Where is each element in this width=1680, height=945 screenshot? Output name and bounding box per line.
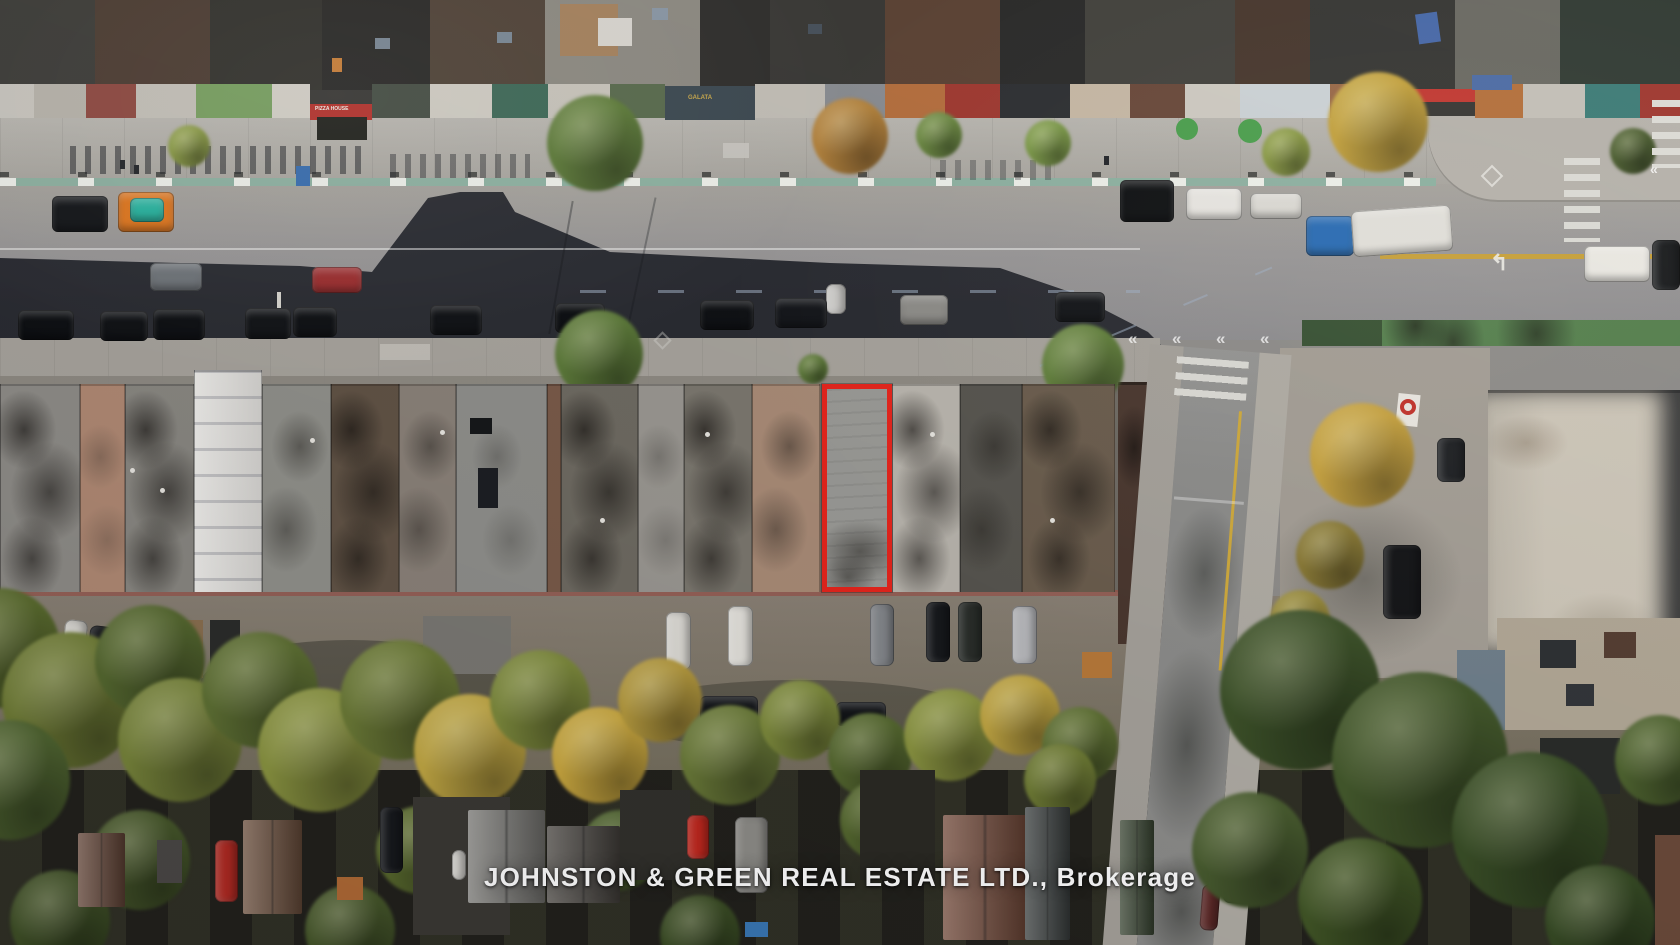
parked-suv [1437, 438, 1465, 482]
crosswalk [1652, 100, 1680, 168]
flat-roof [561, 384, 638, 592]
hvac-unit [1604, 632, 1636, 658]
roof-structure [598, 18, 632, 46]
parked-car-shadow [100, 311, 148, 341]
flat-roof-salmon [80, 384, 125, 592]
house-roof [78, 833, 125, 907]
blue-flag [1415, 12, 1441, 45]
parked-car-shadow [700, 300, 754, 330]
rooftop [0, 0, 95, 90]
street-tree [1262, 128, 1310, 176]
parked-car [870, 604, 894, 666]
patio-furniture [70, 146, 370, 174]
chevron-marking: « [1128, 330, 1137, 347]
parked-car-shadow [775, 298, 827, 328]
street-tree [547, 95, 643, 191]
chevron-marking: « [1650, 162, 1658, 176]
storefront-dark [1000, 84, 1070, 118]
red-truck [215, 840, 238, 902]
flat-roof-brown [1022, 384, 1115, 592]
roof-vent-dot [310, 438, 315, 443]
moving-red-car [312, 267, 362, 293]
flat-roof [0, 384, 80, 592]
storefront [430, 84, 492, 118]
pedestrian [120, 160, 125, 169]
house-roof-brown [243, 820, 302, 914]
chimney [332, 58, 342, 72]
street-tree [916, 112, 962, 158]
street-tree [168, 125, 210, 167]
storefront [34, 84, 86, 118]
blue-banner [1472, 75, 1512, 90]
storefront-red [945, 84, 1000, 118]
flat-roof [262, 384, 331, 592]
roof-vent-dot [600, 518, 605, 523]
storefront-koba [1130, 84, 1185, 118]
parked-car [52, 196, 108, 232]
roof-vent-dot [160, 488, 165, 493]
storefront-teal-awning [492, 84, 548, 118]
storefront [86, 84, 136, 118]
dark-suv [1652, 240, 1680, 290]
roof-vent-dot [705, 432, 710, 437]
rooftop [95, 0, 210, 90]
tree [1024, 744, 1096, 816]
moving-car [826, 284, 846, 314]
rooftop [430, 0, 545, 90]
recycling-bin [296, 166, 310, 186]
turn-arrow-marking: ↰ [1490, 252, 1508, 274]
storefront [1523, 84, 1585, 118]
parked-van [900, 295, 948, 325]
roof-vent [470, 418, 492, 434]
pedestrian [1104, 156, 1109, 165]
patio-umbrella [1176, 118, 1198, 140]
watermark-text: JOHNSTON & GREEN REAL ESTATE LTD., Broke… [484, 862, 1196, 893]
chevron-marking: « [1172, 330, 1181, 347]
aerial-photo: ↰««««« GALATAPIZZA HOUSE JOHNSTON & GREE… [0, 0, 1680, 945]
parked-car [1012, 606, 1037, 664]
rooftop [1560, 0, 1680, 90]
flat-roof-dark [960, 384, 1022, 592]
hvac-unit [1540, 640, 1576, 668]
white-building [194, 370, 262, 592]
orange-shed [337, 877, 363, 900]
house-roof-sliver [1655, 835, 1680, 945]
rooftop [770, 0, 885, 90]
flat-roof-salmon [752, 384, 820, 592]
hvac-unit [1566, 684, 1594, 706]
rooftop-brick [885, 0, 1000, 90]
galata-sign-text: GALATA [688, 95, 712, 101]
storefront [0, 84, 34, 118]
flat-roof-divider [547, 384, 561, 592]
parked-car-shadow [245, 308, 291, 339]
yellow-tree [1310, 403, 1414, 507]
rooftop [210, 0, 322, 90]
flat-roof-mottled [892, 384, 960, 592]
bus-shelter [380, 344, 430, 360]
parked-car-shadow [430, 305, 482, 335]
street-tree-yellow [1328, 72, 1428, 172]
street-tree [1025, 120, 1071, 166]
donut-logo-ring [1400, 399, 1416, 415]
cross-street-east-building [1488, 390, 1680, 654]
parked-white-suv [1186, 188, 1242, 220]
roof-vent-dot [930, 432, 935, 437]
roof-vent-dot [1050, 518, 1055, 523]
parked-car-shadow [293, 307, 337, 337]
storefront [272, 84, 310, 118]
blue-tarp [745, 922, 768, 937]
skylight [652, 8, 668, 20]
storefront-patio [317, 117, 367, 140]
rooftop [1235, 0, 1310, 90]
storefront [1185, 84, 1240, 118]
parked-car-shadow [153, 309, 205, 340]
storefront [1070, 84, 1130, 118]
storefront-galata [665, 86, 755, 120]
parked-car [926, 602, 950, 662]
chevron-marking: « [1216, 330, 1225, 347]
dumpster [1082, 652, 1112, 678]
patio-umbrella [1238, 119, 1262, 143]
white-sedan [1584, 246, 1650, 282]
bike-lane-curb [0, 178, 1436, 186]
storefront-green [196, 84, 272, 118]
skylight [808, 24, 822, 34]
flat-roof-brown [331, 384, 399, 592]
roof-vent [478, 468, 498, 508]
storefront-mural [1240, 84, 1330, 118]
rear-rooftop-beige [1497, 618, 1680, 730]
pizza-house-sign-text: PIZZA HOUSE [315, 107, 348, 112]
storefront [755, 84, 825, 118]
yard-car [380, 807, 403, 873]
storefront [372, 84, 430, 118]
parked-car [958, 602, 982, 662]
bus-shelter [723, 143, 749, 158]
patio-furniture [390, 154, 530, 178]
skylight [375, 38, 390, 49]
yard-car [452, 850, 466, 880]
storefront-teal [1585, 84, 1640, 118]
parked-car-shadow [18, 310, 74, 340]
rooftop [700, 0, 770, 90]
truck-trailer [1351, 205, 1454, 258]
skylight [497, 32, 512, 43]
roof-vent-dot [440, 430, 445, 435]
crosswalk [1174, 356, 1249, 402]
flat-roof [399, 384, 456, 592]
parked-suv [1120, 180, 1174, 222]
parked-car [728, 606, 753, 666]
flat-roof [638, 384, 684, 592]
red-car [687, 815, 709, 859]
subject-property-highlight [822, 384, 892, 592]
moving-car [150, 263, 202, 291]
crosswalk [1564, 158, 1600, 242]
parked-white-sedan [1250, 193, 1302, 219]
tree [1296, 521, 1364, 589]
street-tree-orange [812, 98, 888, 174]
truck-cab [1306, 216, 1354, 256]
rooftop [1085, 0, 1235, 90]
taxi-roof [130, 198, 164, 222]
roof-vent-dot [130, 468, 135, 473]
bike-lane-shadow [1302, 320, 1382, 346]
shrub [798, 354, 828, 384]
flat-roof [456, 384, 547, 592]
flat-roof [684, 384, 752, 592]
tree [1192, 792, 1308, 908]
lane-line [0, 248, 1140, 250]
car-in-shade [1383, 545, 1421, 619]
pedestrian [134, 165, 139, 174]
parked-car-shadow [1055, 292, 1105, 322]
chevron-marking: « [1260, 330, 1269, 347]
storefront [136, 84, 196, 118]
shed-roof [157, 840, 182, 883]
rooftop [1000, 0, 1085, 90]
